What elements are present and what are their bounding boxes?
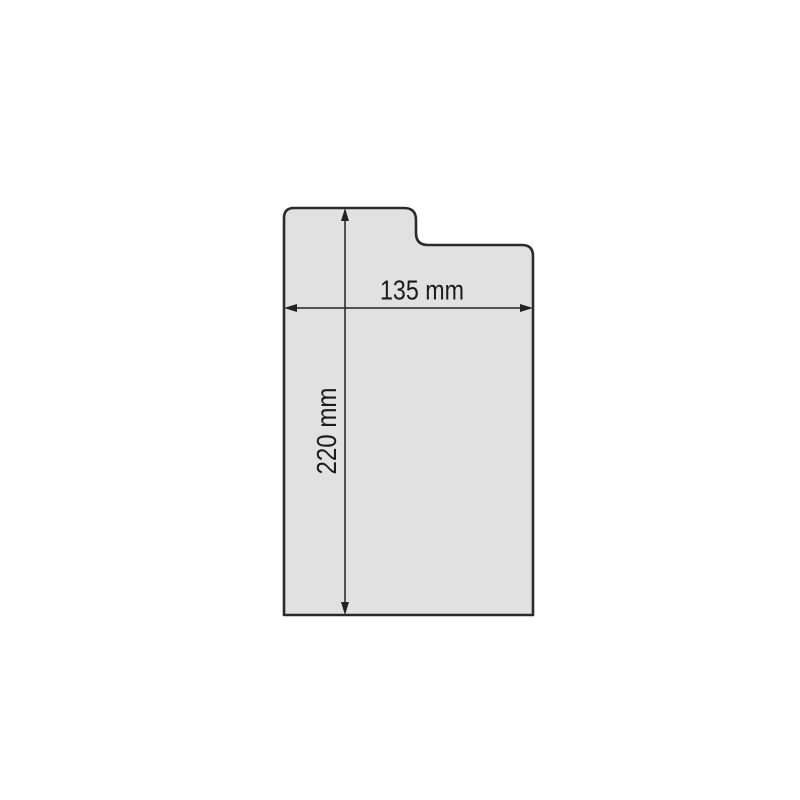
- svg-text:135 mm: 135 mm: [380, 275, 464, 306]
- svg-text:220 mm: 220 mm: [311, 388, 342, 475]
